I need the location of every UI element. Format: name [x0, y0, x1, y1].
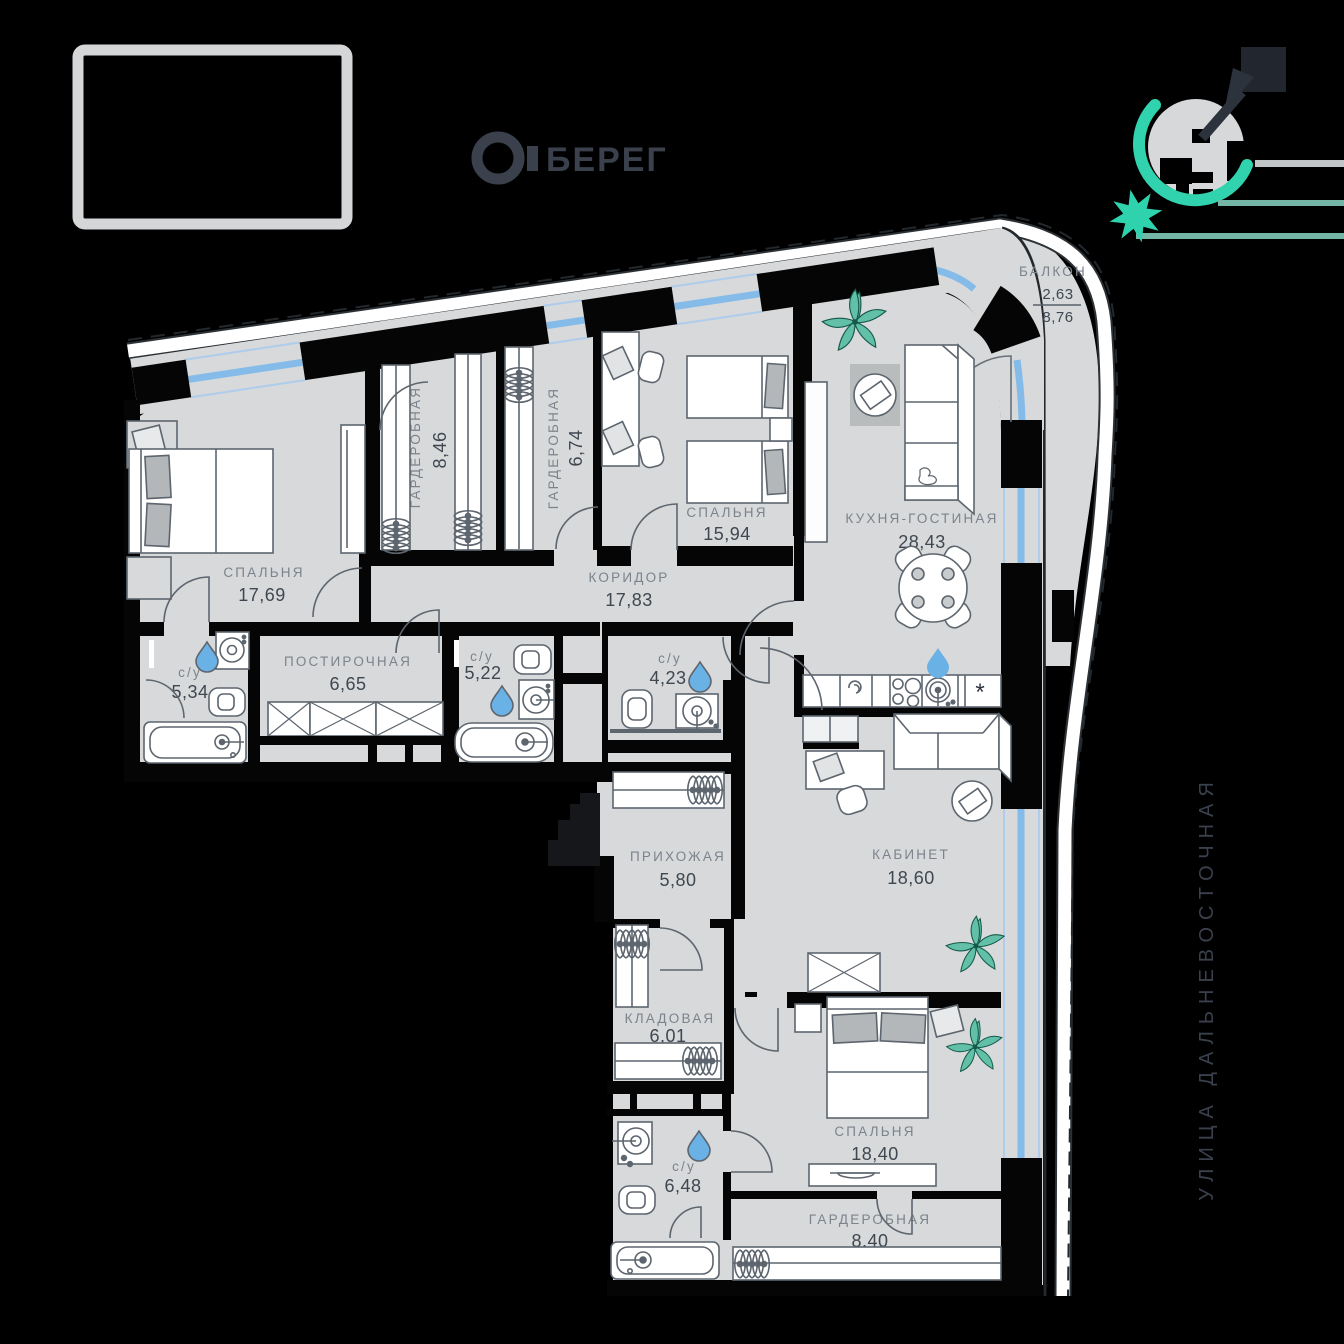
svg-text:СПАЛЬНЯ: СПАЛЬНЯ — [686, 505, 767, 520]
svg-text:с/у: с/у — [658, 651, 682, 666]
svg-text:5,22: 5,22 — [464, 663, 501, 683]
svg-text:КЛАДОВАЯ: КЛАДОВАЯ — [625, 1011, 716, 1026]
svg-text:5,34: 5,34 — [171, 682, 208, 702]
svg-text:6,74: 6,74 — [566, 429, 586, 466]
svg-text:БЕРЕГ: БЕРЕГ — [546, 141, 668, 179]
svg-text:8,76: 8,76 — [1042, 309, 1073, 326]
svg-text:ПРИХОЖАЯ: ПРИХОЖАЯ — [630, 849, 726, 864]
svg-text:ГАРДЕРОБНАЯ: ГАРДЕРОБНАЯ — [546, 387, 561, 509]
svg-text:6,65: 6,65 — [329, 674, 366, 694]
svg-text:КУХНЯ-ГОСТИНАЯ: КУХНЯ-ГОСТИНАЯ — [845, 511, 998, 526]
svg-text:УЛИЦА ДАЛЬНЕВОСТОЧНАЯ: УЛИЦА ДАЛЬНЕВОСТОЧНАЯ — [1196, 775, 1218, 1201]
svg-text:2,63: 2,63 — [1042, 286, 1073, 303]
svg-text:КОРИДОР: КОРИДОР — [589, 570, 670, 585]
svg-text:18,40: 18,40 — [851, 1144, 899, 1164]
svg-text:17,83: 17,83 — [605, 590, 653, 610]
svg-text:с/у: с/у — [672, 1159, 696, 1174]
svg-text:*: * — [975, 679, 984, 706]
svg-text:6,48: 6,48 — [664, 1176, 701, 1196]
svg-text:18,60: 18,60 — [887, 868, 935, 888]
svg-text:СПАЛЬНЯ: СПАЛЬНЯ — [834, 1124, 915, 1139]
svg-text:с/у: с/у — [470, 649, 494, 664]
svg-text:БАЛКОН: БАЛКОН — [1019, 264, 1087, 279]
svg-text:ПОСТИРОЧНАЯ: ПОСТИРОЧНАЯ — [284, 654, 412, 669]
svg-text:СПАЛЬНЯ: СПАЛЬНЯ — [223, 565, 304, 580]
svg-text:4,23: 4,23 — [649, 668, 686, 688]
svg-text:5,80: 5,80 — [659, 870, 696, 890]
svg-text:17,69: 17,69 — [238, 585, 286, 605]
svg-text:КАБИНЕТ: КАБИНЕТ — [872, 847, 950, 862]
svg-text:ГАРДЕРОБНАЯ: ГАРДЕРОБНАЯ — [809, 1212, 931, 1227]
svg-text:15,94: 15,94 — [703, 524, 751, 544]
svg-text:8,46: 8,46 — [430, 431, 450, 468]
